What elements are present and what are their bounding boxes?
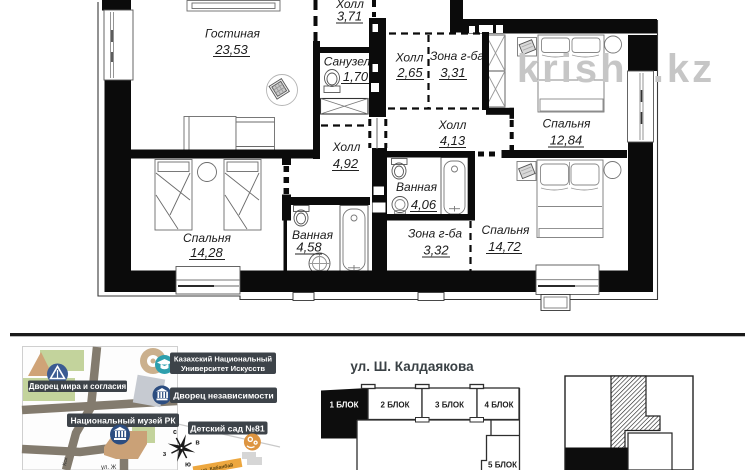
- svg-text:23,53: 23,53: [214, 42, 248, 57]
- svg-text:krisha.kz: krisha.kz: [517, 47, 715, 91]
- svg-text:Детский сад №81: Детский сад №81: [190, 424, 265, 434]
- svg-text:Ванная: Ванная: [396, 180, 438, 194]
- svg-text:з: з: [163, 451, 167, 458]
- svg-text:4,06: 4,06: [411, 197, 437, 212]
- svg-text:3,71: 3,71: [337, 9, 362, 24]
- svg-text:12,84: 12,84: [550, 133, 583, 148]
- svg-text:4,92: 4,92: [333, 156, 359, 171]
- svg-text:Спальня: Спальня: [543, 117, 591, 131]
- svg-text:с: с: [173, 429, 177, 436]
- svg-text:4,13: 4,13: [440, 133, 466, 148]
- svg-text:Санузел: Санузел: [324, 55, 371, 69]
- svg-text:в: в: [195, 440, 200, 447]
- svg-text:Университет Искусств: Университет Искусств: [181, 364, 265, 373]
- svg-text:Национальный музей РК: Национальный музей РК: [70, 416, 176, 426]
- svg-text:Казахский Национальный: Казахский Национальный: [174, 355, 273, 364]
- svg-text:4 БЛОК: 4 БЛОК: [485, 401, 514, 410]
- svg-text:14,28: 14,28: [190, 245, 223, 260]
- svg-text:Дворец независимости: Дворец независимости: [173, 391, 274, 401]
- svg-text:1 БЛОК: 1 БЛОК: [330, 401, 359, 410]
- svg-text:Дворец мира и согласия: Дворец мира и согласия: [29, 382, 127, 391]
- svg-text:ю: ю: [185, 462, 191, 469]
- svg-text:ул. Ж: ул. Ж: [101, 465, 117, 470]
- svg-text:Холл: Холл: [395, 51, 424, 65]
- svg-text:4,58: 4,58: [296, 240, 322, 255]
- svg-text:Гостиная: Гостиная: [205, 27, 260, 41]
- svg-text:Спальня: Спальня: [183, 231, 231, 245]
- svg-text:2 БЛОК: 2 БЛОК: [381, 401, 410, 410]
- svg-text:14,72: 14,72: [488, 239, 521, 254]
- svg-text:1,70: 1,70: [343, 69, 369, 84]
- svg-text:2,65: 2,65: [396, 65, 423, 80]
- svg-text:Холл: Холл: [438, 118, 467, 132]
- svg-text:Холл: Холл: [332, 140, 361, 154]
- svg-text:Спальня: Спальня: [482, 223, 530, 237]
- svg-text:5 БЛОК: 5 БЛОК: [488, 461, 517, 470]
- svg-text:Зона г-ба: Зона г-ба: [408, 227, 462, 241]
- svg-text:ул. Ш. Калдаякова: ул. Ш. Калдаякова: [350, 359, 474, 374]
- svg-text:3,32: 3,32: [423, 243, 449, 258]
- svg-text:Зона г-ба: Зона г-ба: [430, 49, 484, 63]
- svg-text:3 БЛОК: 3 БЛОК: [435, 401, 464, 410]
- svg-text:3,31: 3,31: [440, 65, 465, 80]
